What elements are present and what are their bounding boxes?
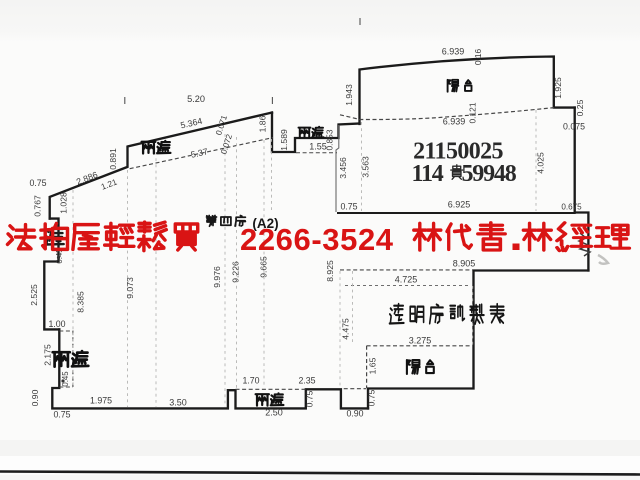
svg-text:9.226: 9.226 [231, 261, 241, 283]
svg-text:4.475: 4.475 [341, 318, 351, 340]
svg-text:8.905: 8.905 [453, 259, 476, 269]
svg-text:3.456: 3.456 [338, 157, 348, 179]
svg-text:2.35: 2.35 [298, 376, 315, 386]
svg-text:1.925: 1.925 [553, 77, 563, 99]
svg-text:0.90: 0.90 [346, 409, 363, 419]
svg-text:8.385: 8.385 [76, 291, 86, 313]
svg-text:0.75: 0.75 [305, 390, 315, 407]
svg-text:1.589: 1.589 [279, 129, 289, 151]
svg-text:0.121: 0.121 [468, 102, 478, 123]
svg-text:0.767: 0.767 [33, 195, 43, 217]
svg-text:4.025: 4.025 [536, 152, 546, 174]
svg-text:9.073: 9.073 [125, 277, 135, 299]
svg-text:0.90: 0.90 [30, 389, 40, 406]
svg-text:9.976: 9.976 [212, 266, 222, 288]
svg-text:9.665: 9.665 [259, 256, 269, 278]
svg-text:6.939: 6.939 [442, 47, 465, 57]
svg-text:6.925: 6.925 [448, 200, 471, 210]
svg-text:0.675: 0.675 [561, 203, 582, 212]
svg-text:0.853: 0.853 [325, 129, 335, 150]
svg-text:4.725: 4.725 [395, 275, 418, 285]
svg-text:0.075: 0.075 [563, 122, 585, 132]
svg-text:0.891: 0.891 [108, 148, 118, 170]
svg-text:1.70: 1.70 [242, 376, 259, 386]
svg-text:0.75: 0.75 [340, 202, 357, 212]
svg-text:2.525: 2.525 [29, 284, 39, 306]
svg-text:0.75: 0.75 [53, 410, 70, 420]
svg-text:2266-3524: 2266-3524 [240, 222, 394, 257]
svg-text:5.20: 5.20 [187, 94, 205, 104]
svg-text:1.028: 1.028 [59, 192, 69, 214]
svg-text:1.86: 1.86 [258, 115, 268, 132]
svg-text:1.65: 1.65 [368, 357, 378, 374]
svg-text:59948: 59948 [461, 161, 516, 187]
svg-text:0.25: 0.25 [575, 99, 585, 116]
svg-text:3.563: 3.563 [361, 156, 371, 178]
svg-text:114: 114 [411, 161, 443, 187]
svg-text:0.75: 0.75 [29, 178, 46, 188]
svg-text:6.939: 6.939 [443, 117, 466, 127]
svg-text:3.275: 3.275 [409, 336, 432, 346]
svg-text:3.50: 3.50 [169, 398, 187, 408]
svg-text:1.943: 1.943 [344, 84, 354, 106]
svg-text:2.50: 2.50 [265, 408, 283, 418]
svg-text:8.925: 8.925 [325, 260, 335, 282]
svg-text:1.00: 1.00 [48, 319, 65, 329]
svg-text:1.975: 1.975 [90, 396, 112, 406]
svg-text:0.75: 0.75 [367, 389, 377, 406]
svg-text:0.16: 0.16 [473, 49, 483, 66]
svg-text:0.45: 0.45 [61, 371, 70, 387]
svg-text:2.175: 2.175 [43, 344, 53, 366]
